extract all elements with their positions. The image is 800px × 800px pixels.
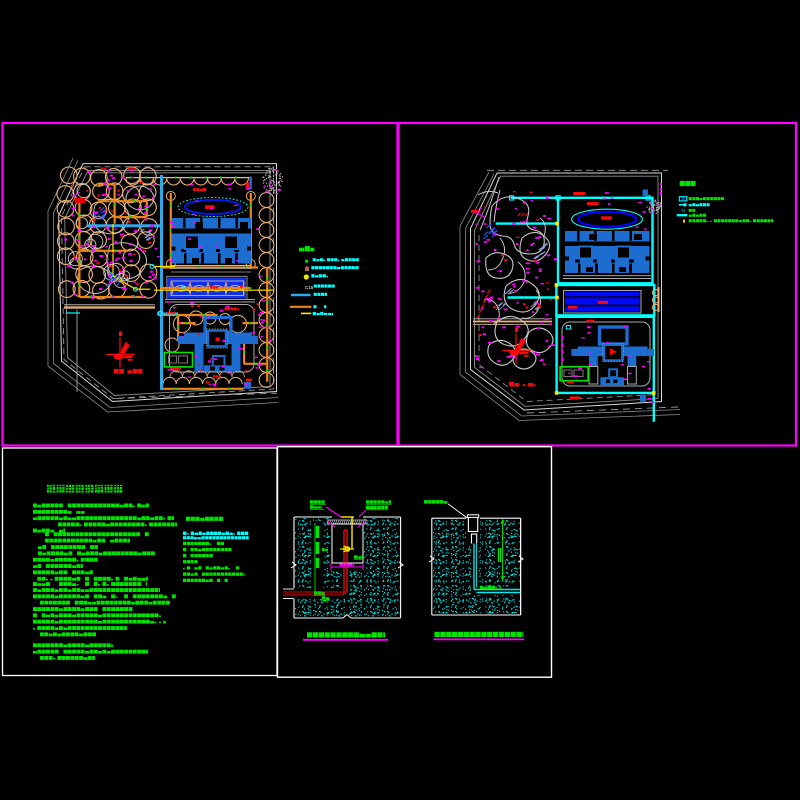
svg-text:H: H: [682, 208, 685, 213]
svg-text:C15: C15: [305, 285, 314, 290]
